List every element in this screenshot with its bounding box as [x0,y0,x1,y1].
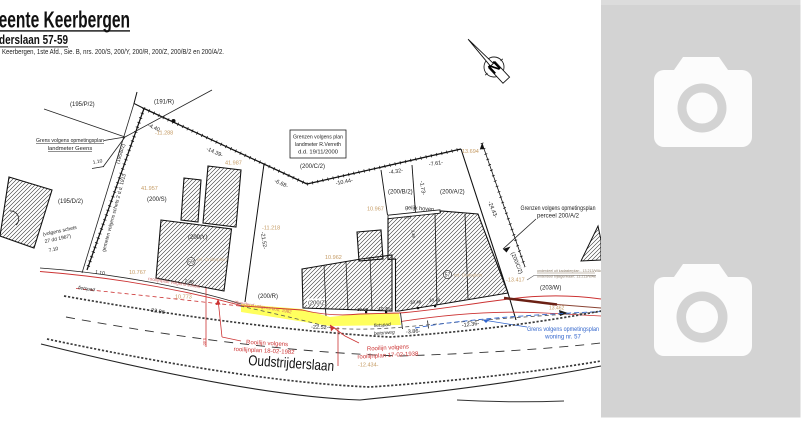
svg-text:Grens volgens opmetingsplan: Grens volgens opmetingsplan [527,327,599,333]
svg-text:Gemeente Keerbergen: Gemeente Keerbergen [0,7,130,33]
svg-text:(191/R): (191/R) [154,100,174,106]
svg-text:(200/Y): (200/Y) [188,235,208,241]
svg-text:-13.417: -13.417 [506,278,525,284]
svg-text:13.462: 13.462 [549,306,565,312]
svg-text:Oudstrijderslaan 57-59: Oudstrijderslaan 57-59 [0,32,68,47]
svg-text:(203/W): (203/W) [540,286,561,292]
svg-text:-3.86-: -3.86- [406,328,421,335]
svg-text:d.d. 19/11/2000: d.d. 19/11/2000 [298,150,338,156]
svg-text:-22.52-: -22.52- [311,325,329,332]
svg-text:-11.288: -11.288 [155,131,173,137]
svg-text:10.773: 10.773 [175,295,192,301]
svg-text:Grens volgens opmetingsplan: Grens volgens opmetingsplan [36,138,104,144]
svg-text:-11.218: -11.218 [262,226,280,232]
svg-text:perceel 200/A/2: perceel 200/A/2 [537,214,580,220]
svg-text:(195/D/2): (195/D/2) [58,199,83,205]
svg-text:(200/C/2): (200/C/2) [300,164,325,170]
svg-text:41.957: 41.957 [141,186,158,192]
svg-text:-12.434-: -12.434- [358,363,379,369]
svg-text:onderdeel bijlagenkaart: 13.21: onderdeel bijlagenkaart: 13.213/WAe [537,275,596,279]
svg-text:59: 59 [188,260,194,266]
svg-text:3.49: 3.49 [411,230,417,239]
svg-text:10.962: 10.962 [325,255,342,261]
svg-text:(200/B/2): (200/B/2) [388,190,413,196]
svg-text:-10.48-: -10.48- [377,306,392,311]
svg-text:Grenzen volgens opmetingsplan: Grenzen volgens opmetingsplan [521,206,596,212]
svg-text:10.49: 10.49 [429,298,441,303]
svg-text:Grenzen volgens plan: Grenzen volgens plan [293,135,343,141]
svg-text:10.96: 10.96 [357,307,369,312]
svg-text:10.48: 10.48 [410,300,422,305]
svg-text:(200/S): (200/S) [147,197,167,203]
svg-text:(200/R): (200/R) [258,294,278,300]
svg-text:57: 57 [445,273,451,279]
svg-text:Keerbergen, 1ste Afd., Sie. B,: Keerbergen, 1ste Afd., Sie. B, nrs. 200/… [2,49,224,56]
svg-text:10.767: 10.767 [129,270,146,276]
svg-text:fietspad: fietspad [374,322,392,329]
svg-text:landmeter R.Verreth: landmeter R.Verreth [295,142,341,148]
svg-text:(200/Z): (200/Z) [308,301,327,307]
svg-text:woning nr. 57: woning nr. 57 [544,335,581,341]
svg-text:5.60: 5.60 [202,338,206,345]
svg-text:(200/A/2): (200/A/2) [440,190,465,196]
svg-text:onderdeel uit kadasterplan - 1: onderdeel uit kadasterplan - 13.213/WAe [537,269,602,273]
svg-text:ref. Onderplein: ref. Onderplein [197,257,227,262]
svg-text:13.694: 13.694 [462,149,479,155]
svg-text:(195/P/2): (195/P/2) [70,102,95,108]
svg-text:ref. Oudeplein: ref. Oudeplein [454,273,483,278]
svg-text:landmeter Geens: landmeter Geens [48,146,93,152]
svg-text:10.967: 10.967 [367,207,384,213]
svg-text:1.62: 1.62 [404,215,412,220]
svg-text:41.987: 41.987 [225,161,242,167]
